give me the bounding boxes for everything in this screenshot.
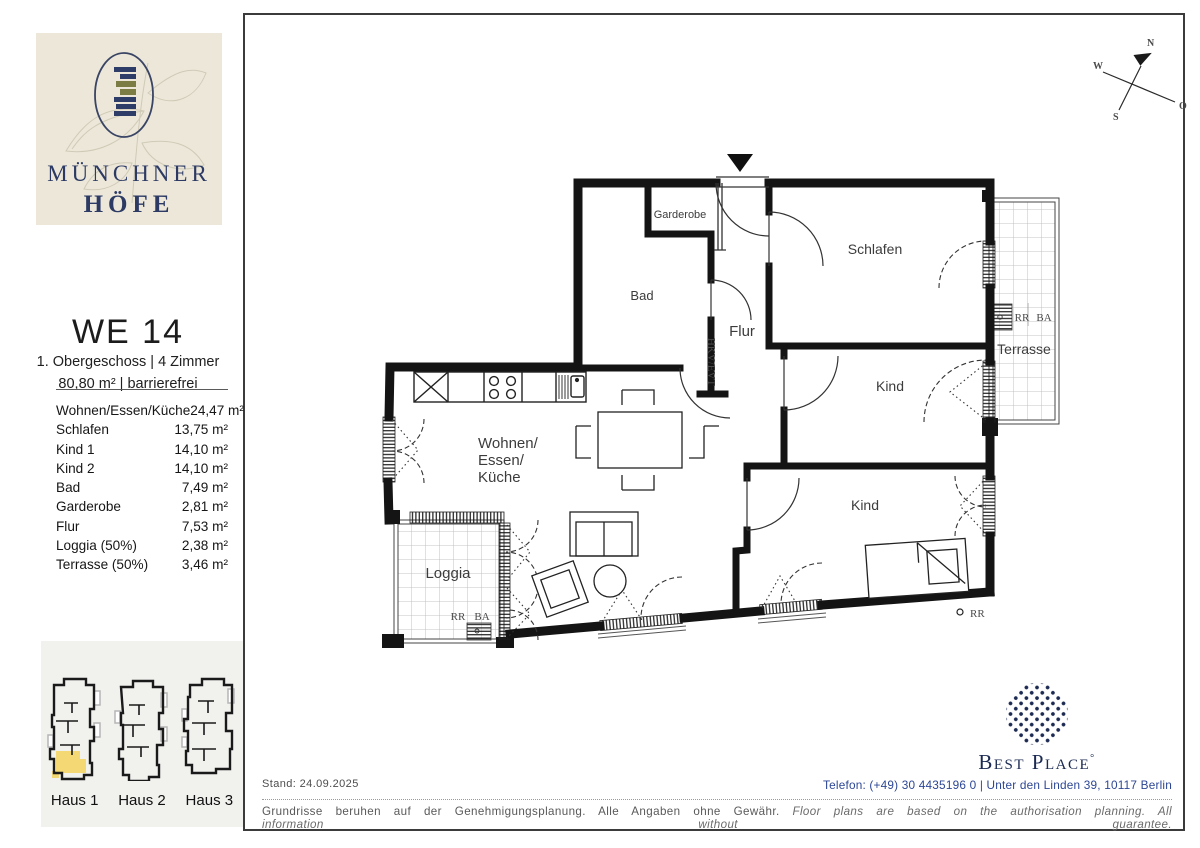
room-area: 2,38 m² [182, 536, 228, 555]
room-label: Wohnen/Essen/Küche [56, 401, 190, 420]
table-row: Schlafen13,75 m² [56, 420, 228, 439]
room-area: 7,53 m² [182, 517, 228, 536]
round-table [594, 565, 626, 597]
highlighted-unit [56, 751, 86, 773]
sidebar-divider [56, 389, 228, 390]
room-label: Garderobe [56, 497, 121, 516]
label-loggia-ba: BA [474, 611, 489, 623]
footer-dotted-divider [262, 799, 1172, 800]
house-label: Haus 2 [111, 792, 173, 809]
room-label: Loggia (50%) [56, 536, 137, 555]
side-table [532, 561, 588, 617]
plan-date: Stand: 24.09.2025 [262, 778, 359, 790]
room-label-wohnen-2: Essen/ [478, 452, 525, 469]
house-2-footprint-icon [113, 675, 171, 781]
room-label-bad: Bad [630, 288, 653, 303]
site-plan-minimap: Haus 1 Haus 2 [41, 641, 243, 827]
house-1-footprint-icon [46, 675, 104, 781]
unit-title: WE 14 [13, 313, 243, 351]
table-row: Terrasse (50%)3,46 m² [56, 555, 228, 574]
bed [865, 538, 968, 598]
label-loggia-rr: RR [451, 611, 466, 623]
bestplace-mark: ° [1090, 753, 1096, 764]
label-terrace-ba: BA [1036, 312, 1051, 324]
disclaimer: Grundrisse beruhen auf der Genehmigungsp… [262, 805, 1172, 831]
room-area: 24,47 m² [190, 401, 244, 420]
brand-name-line2: HÖFE [36, 191, 222, 219]
dining-set [576, 390, 719, 490]
sidebar: MÜNCHNER HÖFE WE 14 1. Obergeschoss | 4 … [13, 13, 245, 831]
room-label: Schlafen [56, 420, 109, 439]
compass-icon: N W O S [1085, 32, 1190, 120]
compass-o-label: O [1179, 101, 1187, 112]
room-label-loggia: Loggia [425, 565, 471, 582]
room-label: Bad [56, 478, 80, 497]
label-rr-outside: RR [970, 608, 985, 620]
table-row: Bad7,49 m² [56, 478, 228, 497]
compass-n-label: N [1147, 38, 1155, 49]
floor-plan: Garderobe Bad Flur Schlafen Kind Kind Wo… [370, 140, 1070, 680]
room-area: 14,10 m² [174, 459, 228, 478]
brand-name-line1: MÜNCHNER [36, 161, 222, 187]
room-label-schlafen: Schlafen [848, 241, 902, 257]
room-label-flur: Flur [729, 323, 755, 340]
house-label: Haus 3 [178, 792, 240, 809]
bestplace-globe-icon [1006, 683, 1068, 745]
rr-marker [957, 609, 963, 615]
unit-header: WE 14 1. Obergeschoss | 4 Zimmer 80,80 m… [13, 313, 243, 395]
disclaimer-german: Grundrisse beruhen auf der Genehmigungsp… [262, 805, 792, 818]
room-area: 7,49 m² [182, 478, 228, 497]
room-label-wohnen-1: Wohnen/ [478, 435, 539, 452]
house-item-3: Haus 3 [178, 675, 240, 809]
room-label-kind1: Kind [876, 378, 904, 394]
label-hkv-evt: HKV/EVT [705, 338, 717, 387]
entrance-arrow-icon [727, 154, 753, 172]
room-area: 3,46 m² [182, 555, 228, 574]
sofa [570, 512, 638, 556]
room-area: 14,10 m² [174, 440, 228, 459]
room-label: Kind 2 [56, 459, 95, 478]
table-row: Kind 114,10 m² [56, 440, 228, 459]
room-label: Terrasse (50%) [56, 555, 148, 574]
room-area-table: Wohnen/Essen/Küche24,47 m² Schlafen13,75… [56, 401, 228, 575]
room-label-wohnen-3: Küche [478, 469, 521, 486]
room-label: Flur [56, 517, 79, 536]
house-item-2: Haus 2 [111, 675, 173, 809]
house-3-footprint-icon [180, 675, 238, 781]
house-label: Haus 1 [44, 792, 106, 809]
entry-partition [714, 177, 769, 250]
compass-s-label: S [1113, 112, 1119, 120]
unit-subtitle-size: 80,80 m² | barrierefrei [13, 373, 243, 395]
brand-bars-icon [114, 67, 136, 116]
table-row: Kind 214,10 m² [56, 459, 228, 478]
table-row: Flur7,53 m² [56, 517, 228, 536]
table-row: Wohnen/Essen/Küche24,47 m² [56, 401, 228, 420]
contact-line: Telefon: (+49) 30 4435196 0 | Unter den … [700, 778, 1172, 792]
room-area: 13,75 m² [174, 420, 228, 439]
compass-w-label: W [1093, 61, 1103, 72]
room-label-garderobe: Garderobe [654, 209, 707, 221]
bestplace-wordmark: Best Place° [952, 749, 1122, 772]
room-label-terrasse: Terrasse [997, 341, 1051, 357]
label-terrace-rr: RR [1015, 312, 1030, 324]
bestplace-name: Best Place [978, 750, 1090, 774]
house-item-1: Haus 1 [44, 675, 106, 809]
table-row: Loggia (50%)2,38 m² [56, 536, 228, 555]
room-label-kind2: Kind [851, 497, 879, 513]
bestplace-logo: Best Place° [952, 683, 1122, 772]
room-area: 2,81 m² [182, 497, 228, 516]
brand-logo: MÜNCHNER HÖFE [36, 33, 222, 225]
unit-subtitle-floor: 1. Obergeschoss | 4 Zimmer [13, 351, 243, 373]
room-label: Kind 1 [56, 440, 95, 459]
table-row: Garderobe2,81 m² [56, 497, 228, 516]
kitchen-counter [414, 372, 586, 402]
